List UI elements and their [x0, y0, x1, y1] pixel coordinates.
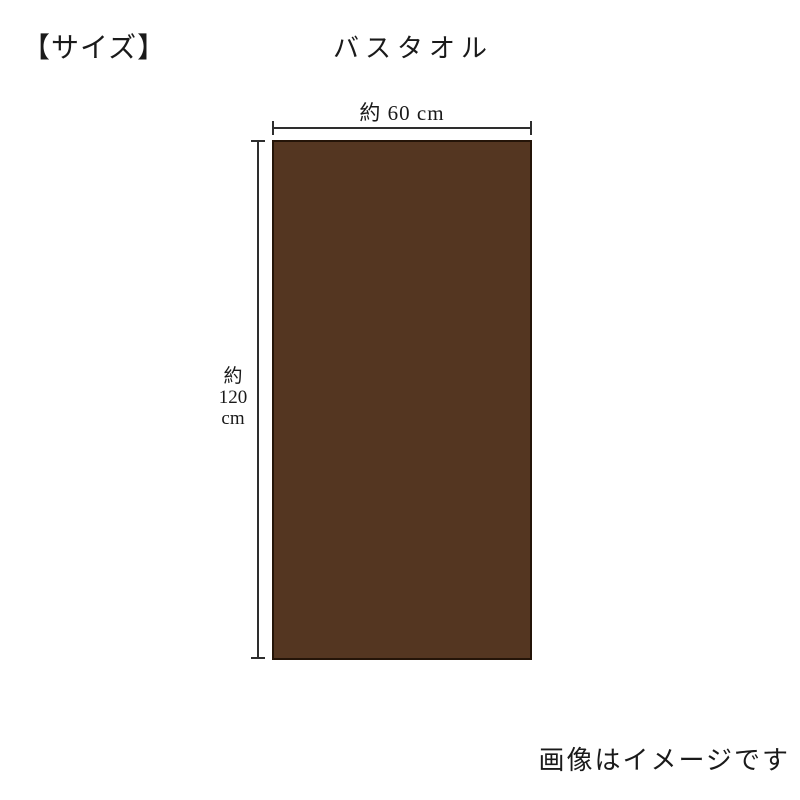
height-dimension-label: 約 120 cm — [212, 366, 254, 429]
image-disclaimer-note: 画像はイメージです — [539, 740, 790, 777]
size-diagram-page: 【サイズ】 バスタオル 約 60 cm 約 120 cm 画像はイメージです — [0, 0, 800, 800]
width-dimension-tick-right — [530, 121, 532, 135]
height-dimension-line — [257, 140, 259, 659]
height-label-line-3: cm — [212, 408, 254, 429]
width-dimension-label: 約 60 cm — [272, 97, 532, 127]
size-heading: 【サイズ】 — [22, 26, 166, 66]
height-dimension-cap-bottom — [251, 657, 265, 659]
width-dimension-tick-left — [272, 121, 274, 135]
height-label-line-2: 120 — [212, 387, 254, 408]
height-label-line-1: 約 — [212, 366, 254, 387]
towel-rectangle — [272, 140, 532, 660]
height-dimension-cap-top — [251, 140, 265, 142]
width-dimension-line — [272, 127, 532, 129]
product-name-heading: バスタオル — [333, 28, 493, 65]
